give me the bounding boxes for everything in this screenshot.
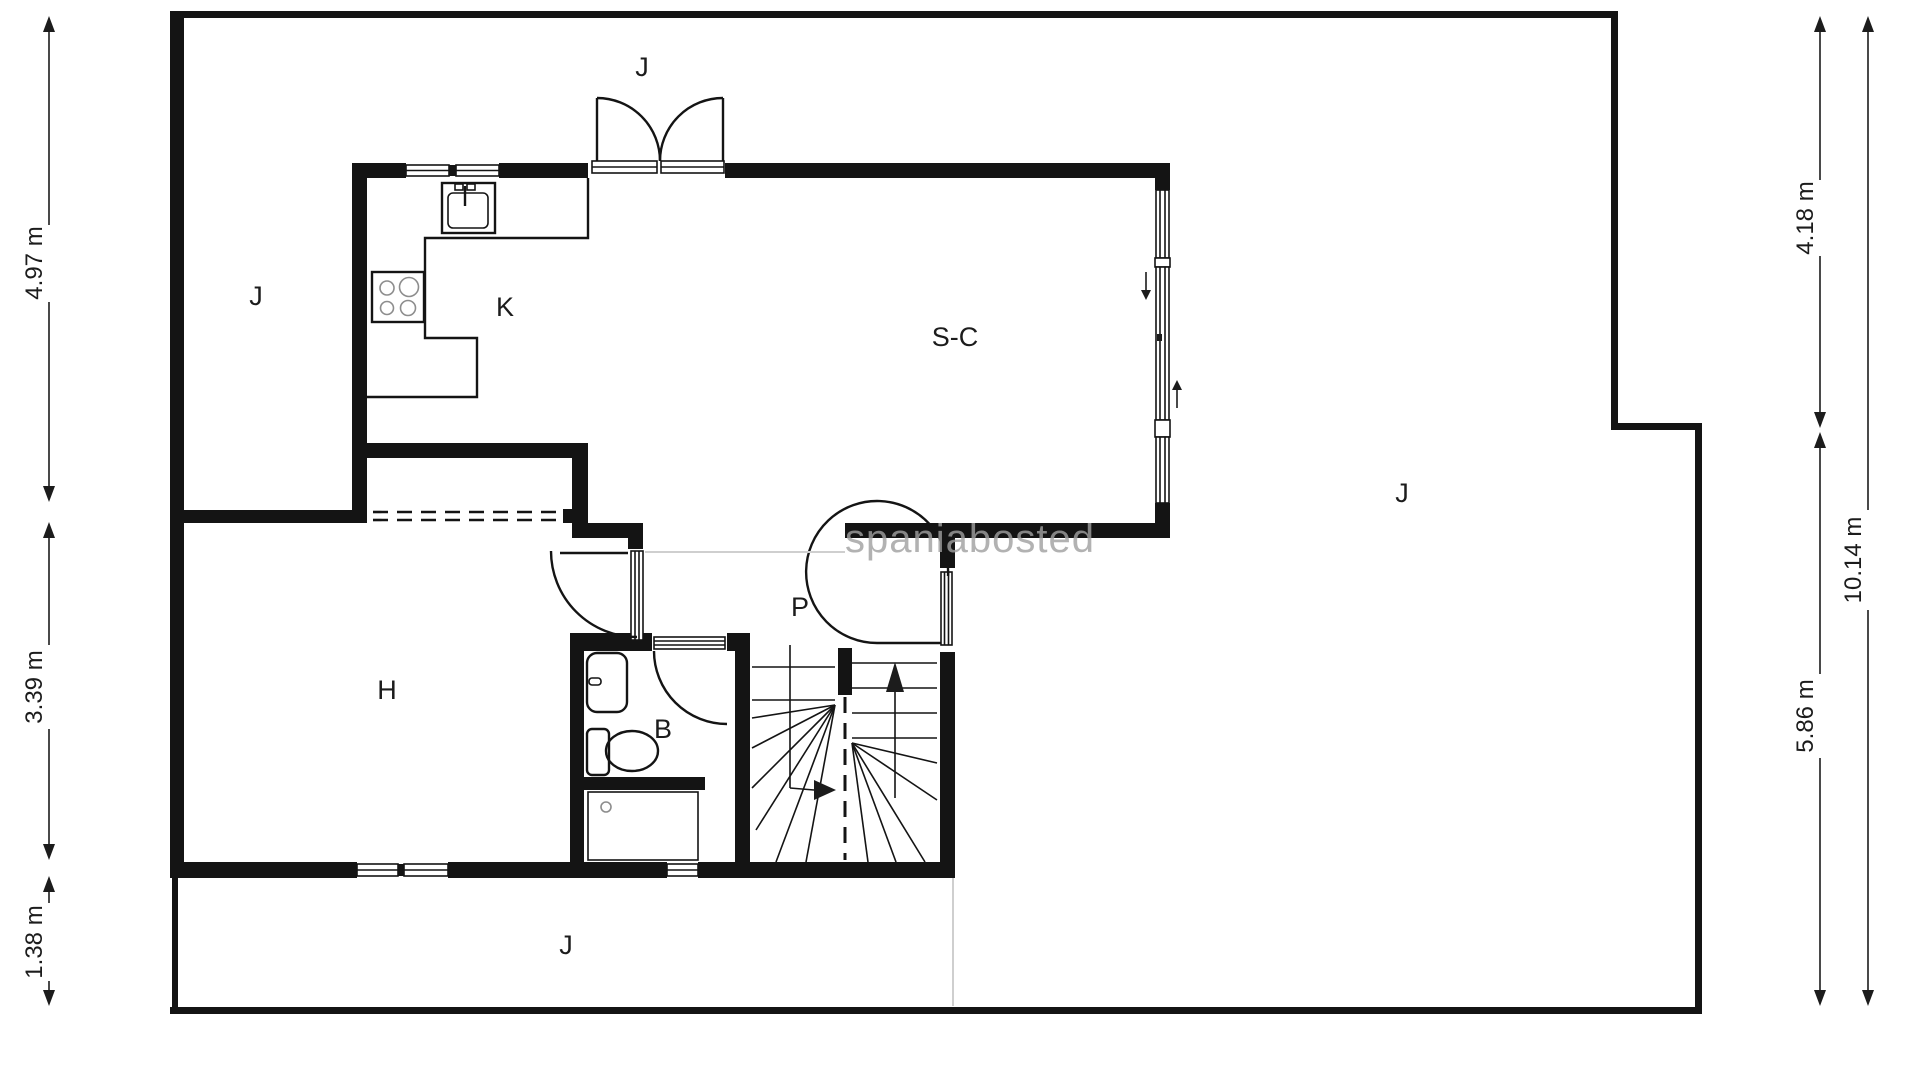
dimension-right-total: 10.14 m xyxy=(1840,16,1874,1006)
wall-living-right-top xyxy=(1155,163,1170,190)
boundary-left-thin xyxy=(172,878,178,1014)
room-labels: J J J J K S-C H B P xyxy=(249,52,1409,960)
floor-plan-svg: 4.97 m 3.39 m 1.38 m 4.18 m 5.86 m 10.14… xyxy=(0,0,1920,1080)
dim-right-lower-label: 5.86 m xyxy=(1792,679,1819,752)
label-hall: H xyxy=(377,675,397,705)
dim-right-upper-label: 4.18 m xyxy=(1792,181,1819,254)
label-passage: P xyxy=(791,592,809,622)
boundary-left-wall xyxy=(170,11,184,878)
bathroom-door xyxy=(654,637,727,724)
dim-left-top-label: 4.97 m xyxy=(21,226,48,299)
wall-passage-top xyxy=(588,523,643,538)
wall-stair-divider xyxy=(838,648,852,695)
double-door-sill xyxy=(592,161,724,173)
window-handle xyxy=(1157,334,1162,341)
dim-right-total-label: 10.14 m xyxy=(1840,517,1867,604)
wall-bath-bottom xyxy=(570,777,705,790)
living-window xyxy=(1141,190,1182,503)
wall-hall-top xyxy=(184,510,360,523)
slide-arrow-up-icon xyxy=(1172,380,1182,408)
stair-arrow-right-icon xyxy=(814,780,836,800)
label-garden-top: J xyxy=(635,52,649,82)
bathroom-fixtures xyxy=(587,653,698,860)
wall-bath-left xyxy=(570,633,584,862)
wall-bottom-right xyxy=(705,862,955,878)
wall-kitchen-stub xyxy=(572,443,588,538)
floor-drain-icon xyxy=(601,802,611,812)
boundary-right-upper xyxy=(1611,11,1618,430)
dimension-left: 4.97 m 3.39 m 1.38 m xyxy=(21,16,55,1006)
wall-bottom-mid xyxy=(457,862,660,878)
boundary-right-lower xyxy=(1695,423,1702,1014)
label-living: S-C xyxy=(932,322,979,352)
label-bathroom: B xyxy=(654,714,672,744)
slide-arrow-down-icon xyxy=(1141,272,1151,300)
dimension-right-inner: 4.18 m 5.86 m xyxy=(1792,16,1826,1006)
kitchen-sink xyxy=(442,183,495,233)
hall-passage-door xyxy=(551,551,643,640)
wall-top-living xyxy=(725,163,1170,178)
utility-window xyxy=(660,862,705,878)
dim-left-middle-label: 3.39 m xyxy=(21,650,48,723)
label-garden-bottom: J xyxy=(559,930,573,960)
toilet xyxy=(587,729,658,775)
floor-plan-page: 4.97 m 3.39 m 1.38 m 4.18 m 5.86 m 10.14… xyxy=(0,0,1920,1080)
boundary-top xyxy=(170,11,1618,18)
wall-door-block xyxy=(628,538,643,549)
wall-bottom-left xyxy=(170,862,348,878)
closet-dashed-front xyxy=(373,512,563,520)
kitchen-stove xyxy=(372,272,424,322)
label-garden-left: J xyxy=(249,281,263,311)
watermark-text: spaniabosted xyxy=(845,517,1095,561)
wall-stair-left xyxy=(735,633,750,862)
wall-closet-stub xyxy=(563,509,573,523)
hall-window xyxy=(348,862,457,878)
dim-left-bottom-label: 1.38 m xyxy=(21,905,48,978)
bath-sink xyxy=(587,653,627,712)
wall-kitchen-bottom xyxy=(360,443,588,458)
wall-top-mid xyxy=(507,163,588,178)
doors xyxy=(373,98,952,724)
wall-kitchen-left xyxy=(352,163,367,523)
wall-stair-right xyxy=(940,652,955,878)
boundary-bottom xyxy=(170,1007,1702,1014)
boundary-step xyxy=(1611,423,1702,430)
kitchen-window xyxy=(398,163,507,178)
label-kitchen: K xyxy=(496,292,514,322)
label-garden-right: J xyxy=(1395,478,1409,508)
stair-flight-left xyxy=(752,645,836,862)
stair-flight-right xyxy=(852,662,937,862)
shower-area xyxy=(588,792,698,860)
stair-arrow-up-icon xyxy=(886,662,904,692)
double-door xyxy=(597,98,723,161)
kitchen-fixtures xyxy=(367,178,588,397)
